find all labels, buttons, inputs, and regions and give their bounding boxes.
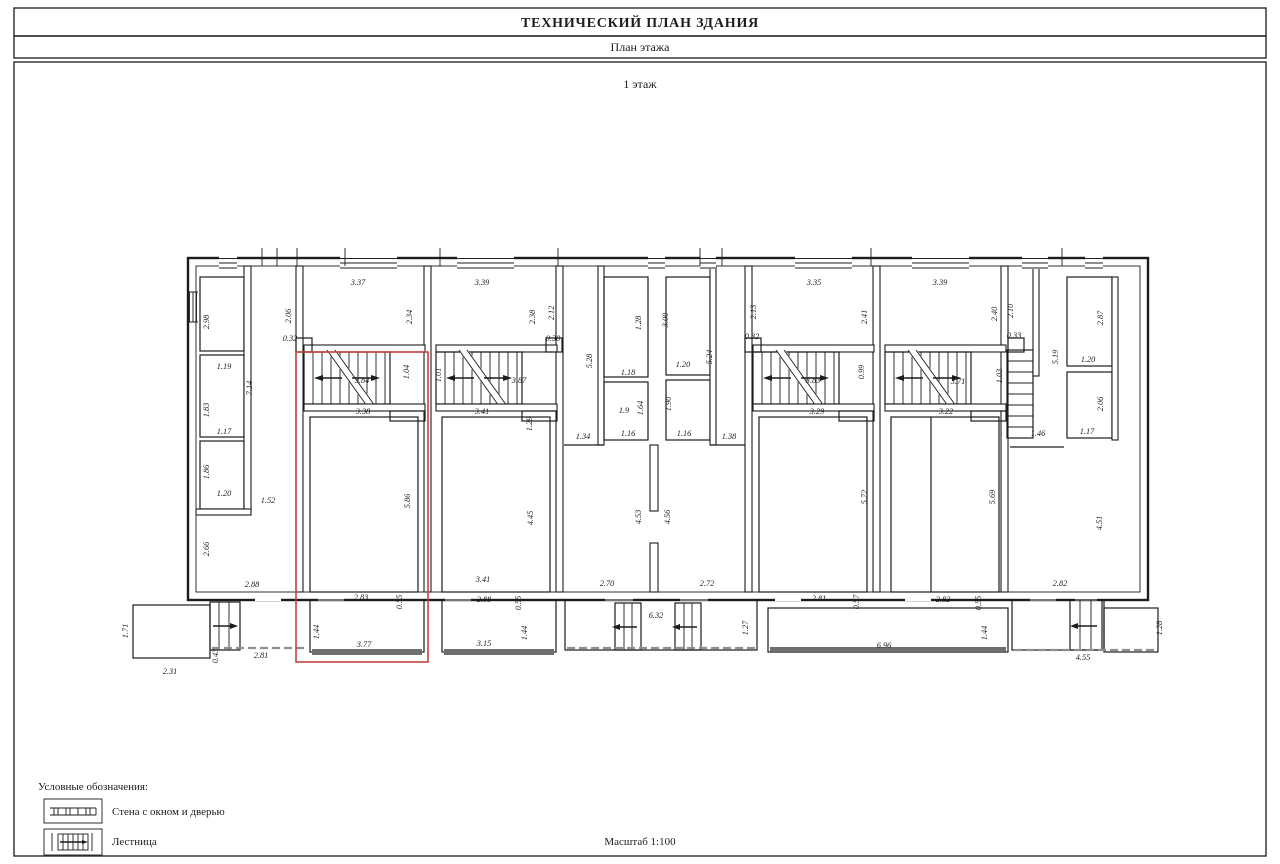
stairs-symbol xyxy=(44,829,102,855)
dimension-label: 1.44 xyxy=(520,626,529,641)
dimension-label: 5.72 xyxy=(860,490,869,505)
dimension-label: 0.32 xyxy=(745,332,760,341)
dimension-label: 1.04 xyxy=(402,365,411,380)
dimension-label: 3.00 xyxy=(661,312,670,328)
dimension-label: 1.86 xyxy=(202,464,211,479)
dimension-label: 3.77 xyxy=(356,640,372,649)
dimension-label: 6.32 xyxy=(649,611,664,620)
page-subtitle: План этажа xyxy=(611,40,671,54)
dimension-label: 2.41 xyxy=(860,310,869,325)
dimension-label: 2.10 xyxy=(1006,303,1015,318)
dimension-label: 1.03 xyxy=(995,369,1004,384)
dimension-label: 1.20 xyxy=(676,360,691,369)
dimension-label: 1.01 xyxy=(434,368,443,383)
dimension-label: 0.57 xyxy=(852,594,861,609)
dimension-label: 0.32 xyxy=(283,334,298,343)
dimension-label: 1.20 xyxy=(1081,355,1096,364)
dimension-label: 2.31 xyxy=(163,667,178,676)
dimension-label: 1.64 xyxy=(636,401,645,416)
dimension-label: 3.22 xyxy=(938,407,954,416)
dimension-label: 1.44 xyxy=(312,625,321,640)
dimension-label: 1.20 xyxy=(217,489,232,498)
dimension-label: 0.55 xyxy=(514,596,523,611)
legend-heading: Условные обозначения: xyxy=(38,781,148,793)
dimension-label: 5.28 xyxy=(585,353,594,368)
dimension-label: 2.34 xyxy=(405,310,414,325)
dimension-label: 2.82 xyxy=(936,595,951,604)
dimension-label: 2.83 xyxy=(354,593,369,602)
dimension-label: 3.83 xyxy=(805,376,821,385)
dimension-label: 1.34 xyxy=(576,432,591,441)
dimension-label: 1.27 xyxy=(741,620,750,635)
dimension-label: 1.16 xyxy=(621,429,636,438)
dimension-label: 4.55 xyxy=(1076,653,1091,662)
dimension-label: 3.38 xyxy=(355,407,371,416)
dimension-label: 3.84 xyxy=(354,376,370,385)
dimension-label: 5.86 xyxy=(403,493,412,508)
dimension-label: 3.87 xyxy=(511,376,527,385)
legend-item-label: Лестница xyxy=(112,836,157,848)
floor-label: 1 этаж xyxy=(623,77,657,91)
dimension-label: 0.30 xyxy=(546,334,561,343)
dimension-label: 2.88 xyxy=(245,580,260,589)
dimension-label: 2.72 xyxy=(700,579,715,588)
dimension-label: 2.13 xyxy=(749,305,758,320)
dimension-label: 4.53 xyxy=(634,510,643,525)
dimension-label: 0.55 xyxy=(974,596,983,611)
dimension-label: 1.83 xyxy=(202,403,211,418)
dimension-label: 1.38 xyxy=(722,432,737,441)
legend-item-label: Стена с окном и дверью xyxy=(112,806,225,818)
dimension-label: 6.96 xyxy=(877,641,892,650)
document-page: ТЕХНИЧЕСКИЙ ПЛАН ЗДАНИЯ План этажа 1 эта… xyxy=(0,0,1280,864)
dimension-label: 4.56 xyxy=(663,509,672,524)
dimension-label: 1.17 xyxy=(217,427,232,436)
dimension-label: 3.35 xyxy=(806,278,822,287)
floor-plan-svg: ТЕХНИЧЕСКИЙ ПЛАН ЗДАНИЯ План этажа 1 эта… xyxy=(0,0,1280,864)
dimension-label: 0.43 xyxy=(211,649,220,664)
dimension-label: 3.29 xyxy=(809,407,825,416)
dimension-label: 1.52 xyxy=(261,496,276,505)
dimension-label: 3.37 xyxy=(350,278,366,287)
dimension-label: 1.17 xyxy=(1080,427,1095,436)
dimension-label: 2.81 xyxy=(254,651,269,660)
scale-label: Масштаб 1:100 xyxy=(604,836,676,848)
dimension-label: 2.98 xyxy=(202,314,211,329)
dimension-label: 1.71 xyxy=(121,624,130,639)
dimension-label: 2.70 xyxy=(600,579,615,588)
dimension-label: 5.69 xyxy=(988,489,997,504)
dimension-label: 1.18 xyxy=(621,368,636,377)
dimension-label: 2.66 xyxy=(202,541,211,556)
dimension-label: 1.46 xyxy=(1031,429,1046,438)
dimension-label: 1.44 xyxy=(980,626,989,641)
dimension-label: 2.38 xyxy=(528,309,537,324)
dimension-label: 0.55 xyxy=(395,595,404,610)
dimension-label: 2.06 xyxy=(1096,396,1105,411)
dimension-label: 3.71 xyxy=(950,377,966,386)
dimension-label: 4.45 xyxy=(526,511,535,526)
dimension-label: 1.16 xyxy=(677,429,692,438)
dimension-label: 2.06 xyxy=(284,308,293,323)
dimension-label: 0.99 xyxy=(857,364,866,379)
dimension-label: 7.14 xyxy=(245,381,254,396)
middle-room-block xyxy=(564,266,745,592)
dimension-label: 2.87 xyxy=(1096,310,1105,325)
page-title: ТЕХНИЧЕСКИЙ ПЛАН ЗДАНИЯ xyxy=(521,14,759,31)
dimension-label: 3.39 xyxy=(932,278,948,287)
dimension-label: 1.29 xyxy=(525,416,534,431)
dimension-label: 4.51 xyxy=(1095,516,1104,531)
dimension-label: 3.41 xyxy=(475,575,491,584)
dimension-label: 1.19 xyxy=(217,362,232,371)
wall-window-door-symbol xyxy=(44,799,102,823)
dimension-label: 5.19 xyxy=(1051,349,1060,364)
dimension-label: 3.39 xyxy=(474,278,490,287)
dimension-label: 2.88 xyxy=(477,595,492,604)
porches xyxy=(133,600,1158,658)
dimension-label: 2.12 xyxy=(547,306,556,321)
legend: Условные обозначения: Стена с окном и дв… xyxy=(38,781,676,855)
dimension-label: 2.40 xyxy=(990,306,999,321)
right-room-column xyxy=(1007,266,1118,447)
dimension-label: 3.15 xyxy=(476,639,492,648)
dimension-label: 2.81 xyxy=(812,594,827,603)
dimension-label: 5.24 xyxy=(705,350,714,365)
dimension-label: 2.82 xyxy=(1053,579,1068,588)
dimension-label: 1.28 xyxy=(1155,620,1164,635)
dimension-label: 3.41 xyxy=(474,407,490,416)
dimension-label: 1.28 xyxy=(634,315,643,330)
dimension-label: 1.90 xyxy=(664,396,673,411)
dimension-label: 0.33 xyxy=(1007,331,1022,340)
sheet-frame xyxy=(14,8,1266,856)
dimension-label: 1.9 xyxy=(619,406,630,415)
